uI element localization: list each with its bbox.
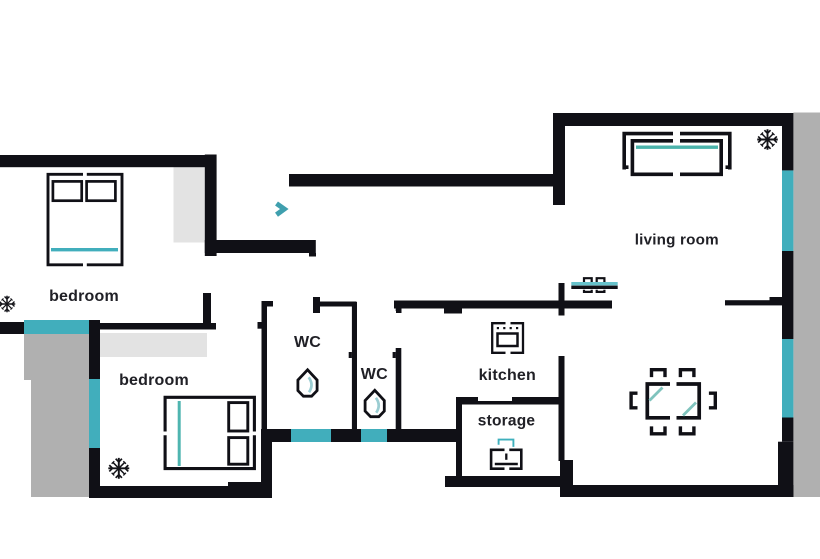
svg-text:WC: WC [361,366,388,383]
svg-text:WC: WC [294,334,321,351]
svg-text:bedroom: bedroom [49,288,119,305]
svg-text:living room: living room [635,232,719,249]
svg-text:kitchen: kitchen [479,367,536,384]
svg-text:bedroom: bedroom [119,372,189,389]
svg-text:storage: storage [478,412,536,429]
